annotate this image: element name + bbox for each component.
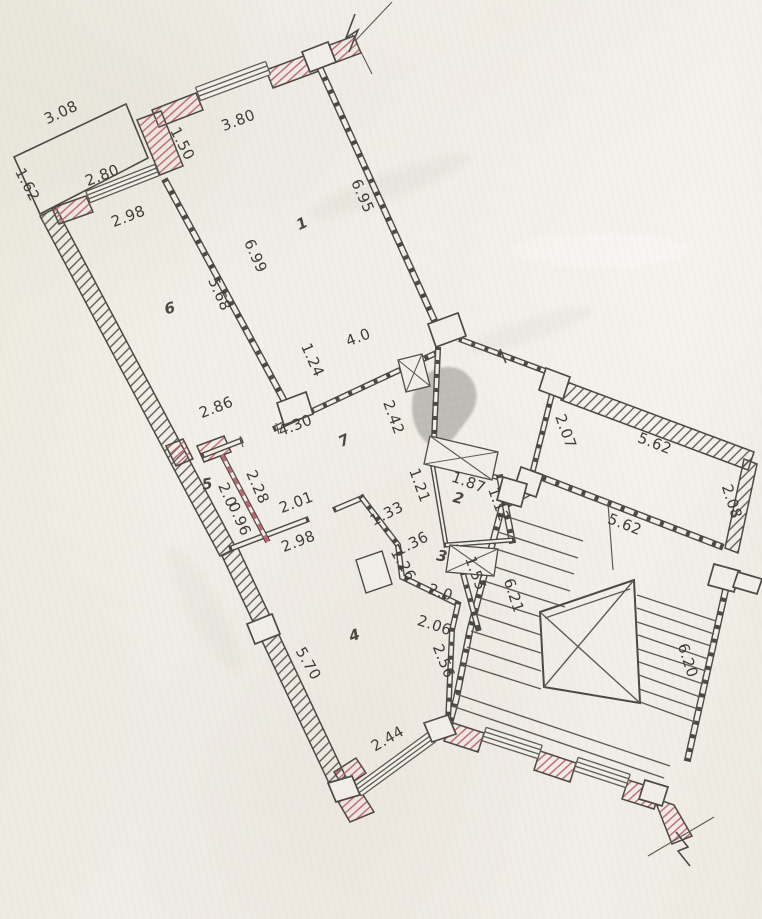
room-label-room3: 3: [435, 546, 448, 566]
dimension-label-top_wall_380: 3.80: [219, 106, 258, 135]
room-label-room1: 1: [293, 213, 310, 234]
dimension-label-room3_206: 2.06: [415, 611, 454, 639]
dimension-label-room3_20: 2.0: [426, 580, 455, 605]
dimension-label-window_244: 2.44: [368, 722, 407, 755]
dimension-label-divider_699: 6.99: [240, 236, 271, 275]
room-label-room2: 2: [451, 488, 466, 508]
dimension-label-hall_286: 2.86: [197, 393, 236, 422]
dimension-label-wall_121: 1.21: [405, 466, 434, 505]
room-label-room5: 5: [200, 474, 213, 494]
dimension-label-wall_298_top: 2.98: [109, 202, 148, 231]
scanned-floor-plan-document: 3.081.622.802.981.503.806.956.995.684.01…: [0, 0, 762, 919]
dimension-label-stair_620: 6.20: [674, 641, 702, 680]
room-label-room7: 7: [335, 430, 353, 451]
floor-plan-canvas: 3.081.622.802.981.503.806.956.995.684.01…: [0, 0, 762, 919]
misc-marks: [14, 2, 714, 866]
dimension-label-balcony_width: 3.08: [41, 97, 80, 128]
dimension-label-door_124: 1.24: [297, 340, 328, 379]
dimension-label-stair_621: 6.21: [500, 576, 528, 615]
dimension-label-divider_568: 5.68: [204, 274, 235, 313]
dimension-label-hall_40: 4.0: [343, 324, 373, 350]
dimension-label-corridor_207: 2.07: [551, 412, 580, 451]
dimension-label-balcony_depth: 1.62: [11, 165, 43, 204]
dimension-label-wall_133: 1.33: [367, 498, 406, 530]
room-label-room6: 6: [162, 298, 177, 318]
dimension-label-wall_242: 2.42: [379, 398, 408, 437]
room-label-room4: 4: [345, 625, 362, 646]
dimension-label-hall_201: 2.01: [277, 488, 316, 517]
